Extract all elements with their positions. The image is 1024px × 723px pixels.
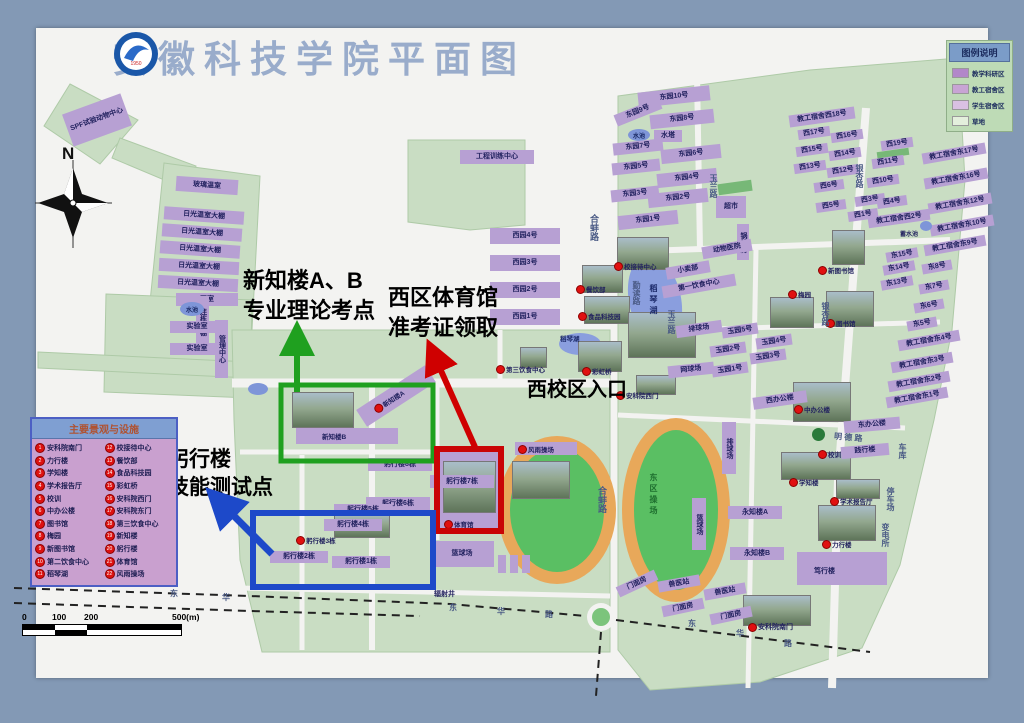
- campus-map-screenshot: { "title": {"text": "安徽科技学院平面图"}, "legen…: [0, 0, 1024, 723]
- arrow-red: [434, 355, 475, 447]
- exam-area-rect-green: [281, 385, 433, 461]
- annotation-overlay-svg: [0, 0, 1024, 723]
- skill-area-rect-blue: [253, 513, 433, 587]
- arrow-blue: [220, 502, 272, 554]
- gym-area-rect-red: [437, 449, 501, 531]
